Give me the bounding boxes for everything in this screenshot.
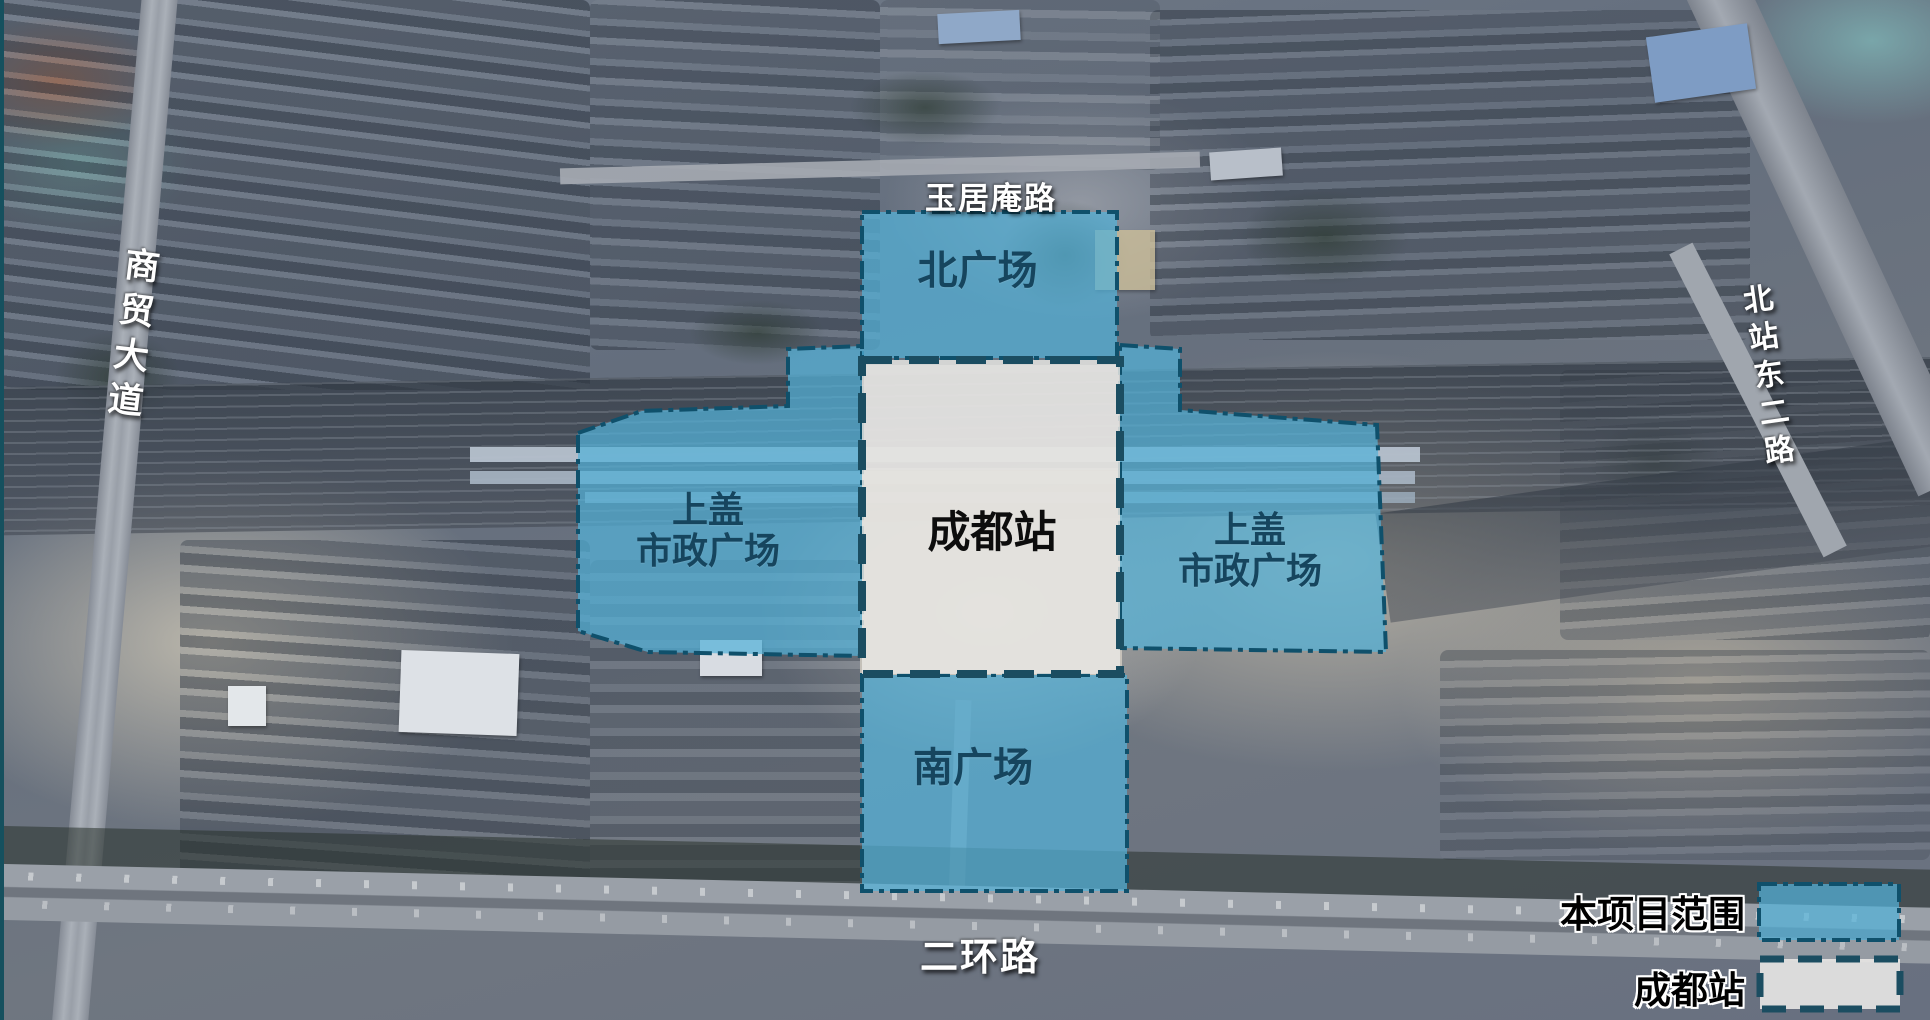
legend-station-swatch xyxy=(1756,955,1904,1013)
legend-project-scope-swatch xyxy=(1756,881,1902,943)
legend-project-scope-label: 本项目范围 xyxy=(1450,884,1745,938)
erhuan-road-label: 二环路 xyxy=(920,926,1040,981)
chengdu-station-label: 成都站 xyxy=(864,498,1120,560)
south-plaza-label: 南广场 xyxy=(845,745,1101,791)
yujuan-an-road-label: 玉居庵路 xyxy=(925,173,1057,218)
satellite-project-map: 北广场 上盖 市政广场 成都站 上盖 市政广场 南广场 玉居庵路 商贸大道 北站… xyxy=(0,0,1930,1020)
west-deck-plaza-label-line1: 上盖 xyxy=(593,489,823,530)
area-east-deck-plaza xyxy=(1120,345,1386,652)
east-deck-plaza-label-line2: 市政广场 xyxy=(1135,550,1365,591)
west-deck-plaza-label-line2: 市政广场 xyxy=(593,530,823,571)
west-deck-plaza-label: 上盖 市政广场 xyxy=(593,489,823,572)
legend-station-label: 成都站 xyxy=(1450,960,1745,1014)
east-deck-plaza-label-line1: 上盖 xyxy=(1135,509,1365,550)
north-plaza-label: 北广场 xyxy=(850,248,1105,294)
east-deck-plaza-label: 上盖 市政广场 xyxy=(1135,509,1365,592)
